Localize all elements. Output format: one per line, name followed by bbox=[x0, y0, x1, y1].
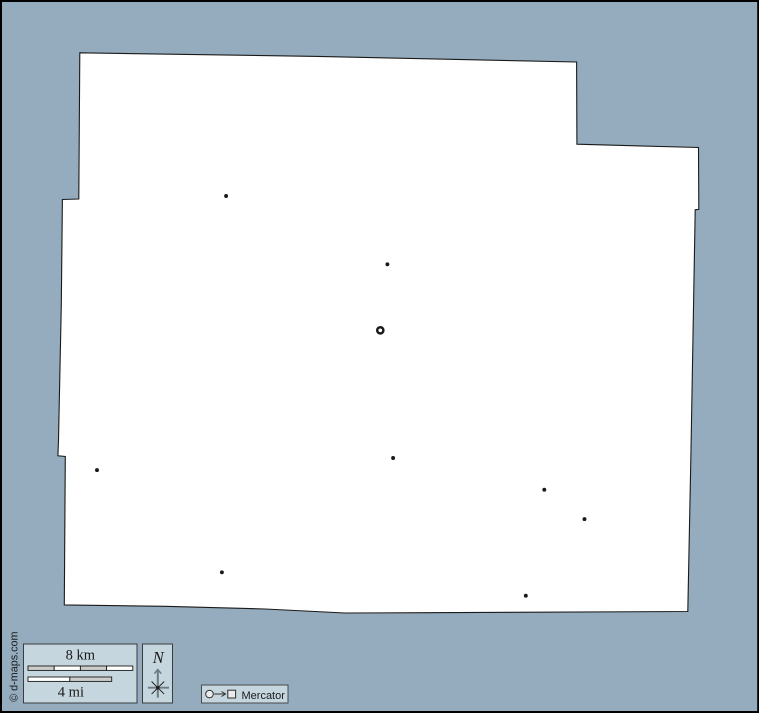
svg-text:4 mi: 4 mi bbox=[58, 685, 84, 701]
svg-text:Mercator: Mercator bbox=[242, 690, 286, 702]
svg-text:© d-maps.com: © d-maps.com bbox=[9, 631, 21, 701]
svg-text:8 km: 8 km bbox=[66, 648, 96, 664]
svg-text:N: N bbox=[152, 648, 165, 667]
